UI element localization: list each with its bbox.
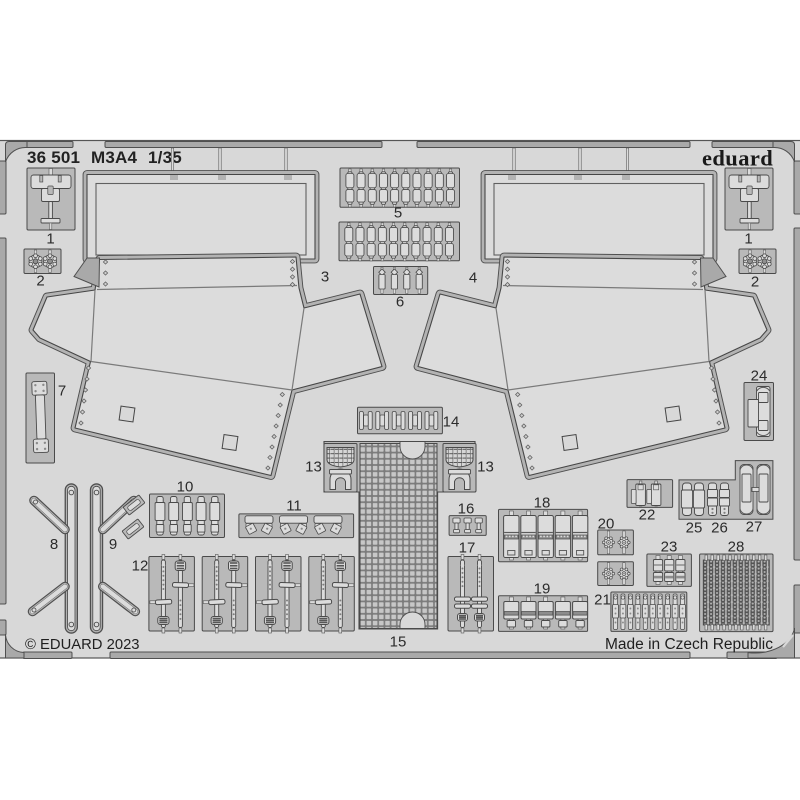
svg-text:eduard: eduard: [702, 146, 773, 171]
svg-text:11: 11: [286, 497, 302, 514]
svg-text:27: 27: [746, 518, 763, 535]
svg-text:18: 18: [534, 494, 551, 511]
svg-text:14: 14: [443, 413, 460, 430]
svg-text:24: 24: [751, 367, 768, 384]
svg-text:23: 23: [661, 538, 678, 555]
svg-text:10: 10: [177, 478, 194, 495]
svg-text:20: 20: [598, 515, 615, 532]
svg-text:13: 13: [477, 458, 494, 475]
svg-text:9: 9: [109, 536, 117, 553]
svg-text:19: 19: [534, 580, 551, 597]
svg-text:4: 4: [469, 269, 477, 286]
svg-text:17: 17: [459, 539, 476, 556]
svg-text:1: 1: [46, 230, 54, 247]
svg-text:2: 2: [36, 272, 44, 289]
svg-text:15: 15: [390, 633, 407, 650]
svg-text:13: 13: [305, 458, 322, 475]
svg-text:1: 1: [744, 230, 752, 247]
svg-text:12: 12: [132, 557, 149, 574]
svg-text:© EDUARD 2023: © EDUARD 2023: [25, 637, 140, 653]
svg-text:16: 16: [458, 500, 475, 517]
svg-text:36 501M3A41/35: 36 501M3A41/35: [27, 148, 182, 167]
svg-text:22: 22: [639, 506, 656, 523]
svg-text:28: 28: [728, 538, 745, 555]
svg-text:21: 21: [594, 591, 611, 608]
svg-text:25: 25: [686, 519, 703, 536]
svg-text:8: 8: [50, 536, 58, 553]
svg-text:5: 5: [394, 204, 402, 221]
svg-text:6: 6: [396, 293, 404, 310]
svg-text:3: 3: [321, 268, 329, 285]
svg-text:2: 2: [751, 273, 759, 290]
svg-text:7: 7: [58, 382, 66, 399]
svg-text:Made in Czech Republic: Made in Czech Republic: [605, 636, 773, 653]
svg-text:26: 26: [711, 519, 728, 536]
